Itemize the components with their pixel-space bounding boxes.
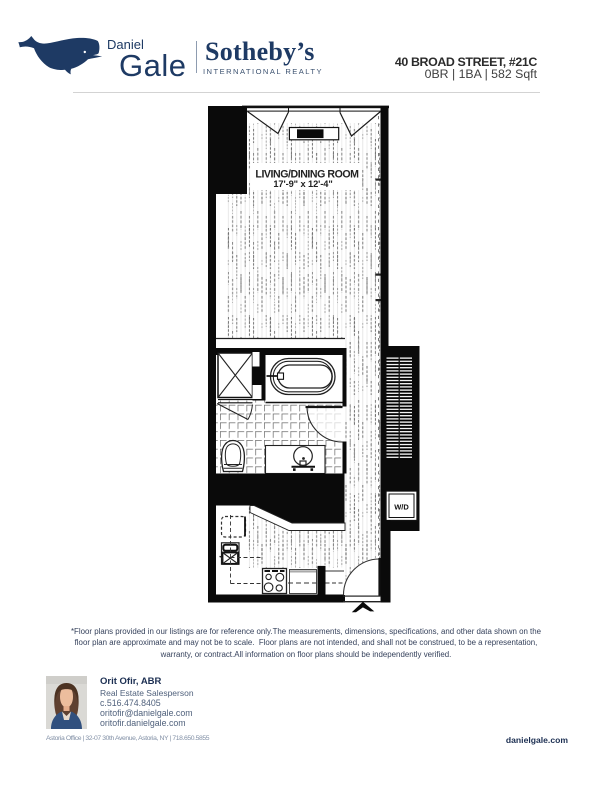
svg-text:W/D: W/D: [394, 503, 409, 512]
svg-text:17'-9" x 12'-4": 17'-9" x 12'-4": [273, 179, 332, 189]
